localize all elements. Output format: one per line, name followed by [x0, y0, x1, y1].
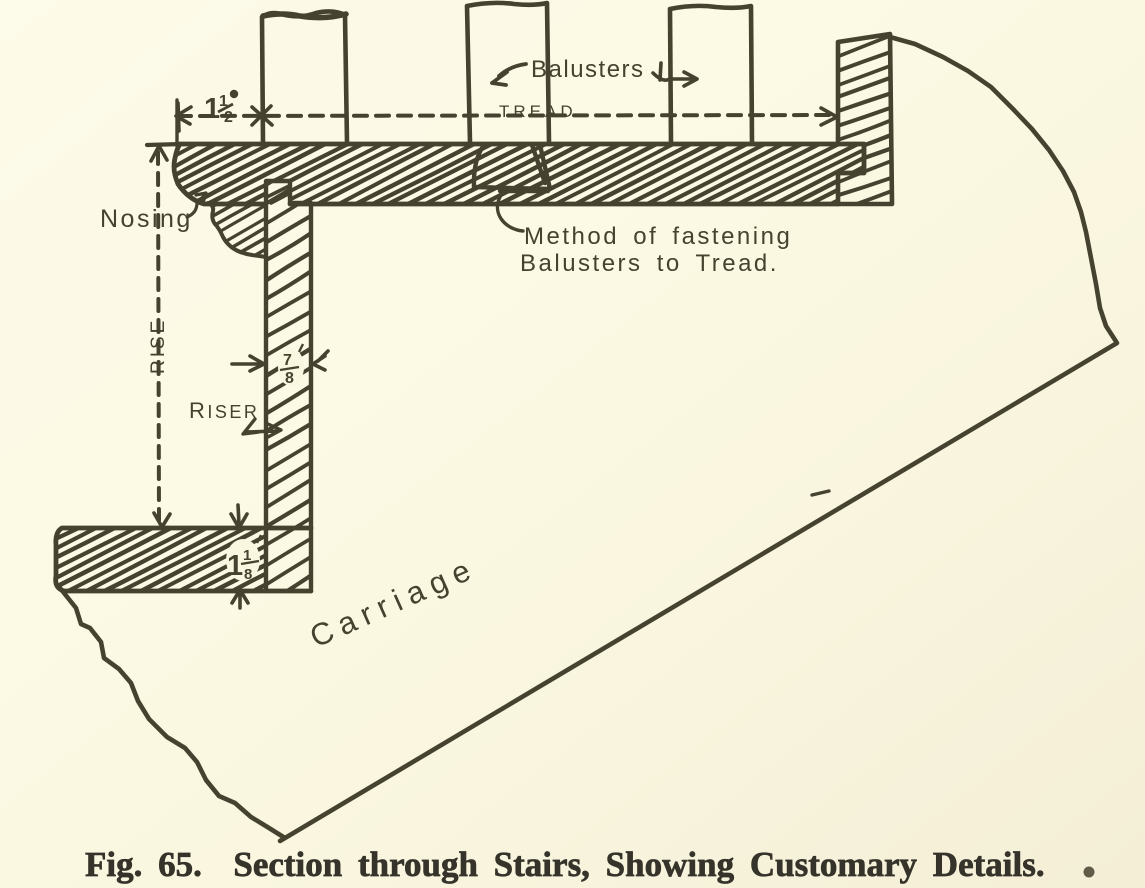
svg-text:Balusters: Balusters [531, 56, 645, 83]
svg-text:8: 8 [244, 566, 252, 583]
svg-text:Method of fastening: Method of fastening [524, 223, 792, 250]
svg-text:Nosing: Nosing [100, 205, 193, 233]
svg-text:TREAD: TREAD [499, 102, 577, 121]
svg-text:7: 7 [283, 352, 292, 369]
svg-text:1: 1 [227, 550, 243, 582]
svg-text:RISER: RISER [189, 398, 259, 423]
svg-text:8: 8 [285, 370, 294, 387]
svg-text:RISE: RISE [148, 318, 169, 374]
svg-text:2: 2 [224, 109, 233, 126]
svg-text:Balusters to Tread.: Balusters to Tread. [520, 250, 779, 277]
svg-text:Fig. 65. Section through Stai: Fig. 65. Section through Stairs, Showing… [85, 845, 1045, 884]
svg-text:1: 1 [204, 93, 220, 125]
